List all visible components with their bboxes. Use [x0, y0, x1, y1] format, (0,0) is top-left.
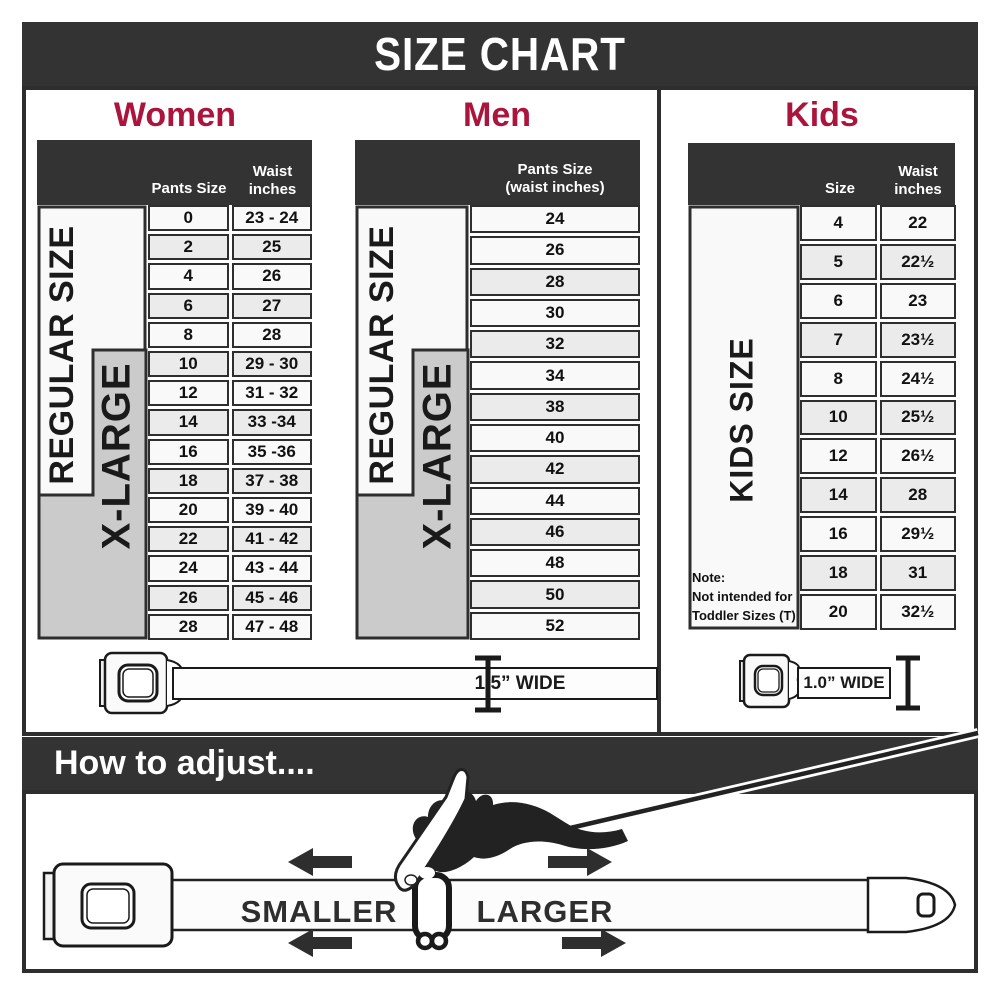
size-cell: 46 — [470, 518, 640, 546]
waist-cell: 43 - 44 — [232, 555, 313, 581]
size-cell: 32 — [470, 330, 640, 358]
waist-cell: 25 — [232, 234, 313, 260]
waist-cell: 33 -34 — [232, 409, 313, 435]
size-cell: 20 — [148, 497, 229, 523]
size-cell: 0 — [148, 205, 229, 231]
waist-cell: 45 - 46 — [232, 585, 313, 611]
kids-size-table: 422522½623723½824½1025½1226½14281629½183… — [800, 205, 956, 630]
waist-cell: 32½ — [880, 594, 957, 630]
size-cell: 34 — [470, 361, 640, 389]
kids-size-label: KIDS SIZE — [723, 337, 759, 502]
waist-cell: 29 - 30 — [232, 351, 313, 377]
waist-cell: 29½ — [880, 516, 957, 552]
waist-cell: 23 - 24 — [232, 205, 313, 231]
size-cell: 44 — [470, 487, 640, 515]
size-cell: 22 — [148, 526, 229, 552]
size-cell: 2 — [148, 234, 229, 260]
waist-cell: 25½ — [880, 400, 957, 436]
waist-cell: 31 — [880, 555, 957, 591]
adjust-illustration-panel — [22, 790, 978, 973]
kids-belt-buckle — [738, 653, 802, 713]
women-xlarge-label: X-LARGE — [95, 363, 139, 550]
size-cell: 14 — [148, 409, 229, 435]
size-cell: 6 — [800, 283, 877, 319]
size-cell: 30 — [470, 299, 640, 327]
size-cell: 6 — [148, 293, 229, 319]
size-cell: 26 — [470, 236, 640, 264]
size-cell: 16 — [800, 516, 877, 552]
kids-size-group-label: KIDS SIZE — [688, 205, 800, 630]
waist-cell: 28 — [232, 322, 313, 348]
waist-cell: 22 — [880, 205, 957, 241]
title-bar: SIZE CHART — [22, 22, 978, 86]
waist-cell: 28 — [880, 477, 957, 513]
size-cell: 24 — [148, 555, 229, 581]
size-cell: 28 — [148, 614, 229, 640]
women-col-waist: Waist inches — [233, 163, 312, 199]
size-cell: 12 — [800, 438, 877, 474]
waist-cell: 31 - 32 — [232, 380, 313, 406]
kids-col-waist: Waist inches — [882, 163, 954, 199]
adjust-heading: How to adjust.... — [54, 744, 315, 783]
size-cell: 50 — [470, 580, 640, 608]
waist-cell: 47 - 48 — [232, 614, 313, 640]
men-heading: Men — [382, 95, 612, 135]
waist-cell: 24½ — [880, 361, 957, 397]
size-cell: 42 — [470, 455, 640, 483]
adult-belt-width-marker — [472, 654, 504, 714]
men-xlarge-label: X-LARGE — [416, 363, 460, 550]
waist-cell: 26½ — [880, 438, 957, 474]
size-cell: 40 — [470, 424, 640, 452]
waist-cell: 39 - 40 — [232, 497, 313, 523]
size-cell: 20 — [800, 594, 877, 630]
waist-cell: 41 - 42 — [232, 526, 313, 552]
women-regular-size-label: REGULAR SIZE — [43, 225, 81, 484]
size-cell: 4 — [800, 205, 877, 241]
waist-cell: 27 — [232, 293, 313, 319]
waist-cell: 23½ — [880, 322, 957, 358]
men-size-group-labels: REGULAR SIZE X-LARGE — [355, 205, 470, 640]
waist-cell: 23 — [880, 283, 957, 319]
waist-cell: 26 — [232, 263, 313, 289]
size-cell: 7 — [800, 322, 877, 358]
kids-belt-strap: 1.0” WIDE — [797, 667, 891, 699]
waist-cell: 37 - 38 — [232, 468, 313, 494]
women-col-pants-size: Pants Size — [148, 180, 230, 198]
waist-cell: 22½ — [880, 244, 957, 280]
size-cell: 18 — [800, 555, 877, 591]
men-table-header: Pants Size (waist inches) — [355, 140, 640, 205]
size-cell: 24 — [470, 205, 640, 233]
kids-belt-width-label: 1.0” WIDE — [803, 673, 884, 693]
women-heading: Women — [60, 95, 290, 135]
size-cell: 10 — [800, 400, 877, 436]
size-cell: 28 — [470, 268, 640, 296]
section-divider — [657, 86, 661, 736]
size-cell: 14 — [800, 477, 877, 513]
size-cell: 8 — [800, 361, 877, 397]
page-title: SIZE CHART — [374, 27, 626, 81]
size-cell: 5 — [800, 244, 877, 280]
kids-belt-width-marker — [893, 654, 923, 712]
size-cell: 4 — [148, 263, 229, 289]
adjust-section-bar: How to adjust.... — [22, 737, 978, 790]
women-size-group-labels: REGULAR SIZE X-LARGE — [37, 205, 148, 640]
size-cell: 26 — [148, 585, 229, 611]
waist-cell: 35 -36 — [232, 439, 313, 465]
size-cell: 48 — [470, 549, 640, 577]
size-cell: 16 — [148, 439, 229, 465]
size-cell: 38 — [470, 393, 640, 421]
size-cell: 12 — [148, 380, 229, 406]
women-table-header: Pants Size Waist inches — [37, 140, 312, 205]
men-regular-size-label: REGULAR SIZE — [363, 225, 401, 484]
size-cell: 52 — [470, 612, 640, 640]
kids-heading: Kids — [707, 95, 937, 135]
adult-belt-strap: 1.5” WIDE — [172, 667, 658, 700]
men-size-table: 2426283032343840424446485052 — [470, 205, 640, 640]
men-col-pants-size: Pants Size (waist inches) — [470, 161, 640, 197]
kids-note: Note: Not intended for Toddler Sizes (T) — [692, 569, 802, 626]
size-cell: 18 — [148, 468, 229, 494]
size-cell: 10 — [148, 351, 229, 377]
women-size-table: 023 - 242254266278281029 - 301231 - 3214… — [148, 205, 312, 640]
kids-col-size: Size — [800, 180, 880, 198]
kids-table-header: Size Waist inches — [688, 143, 955, 205]
size-cell: 8 — [148, 322, 229, 348]
